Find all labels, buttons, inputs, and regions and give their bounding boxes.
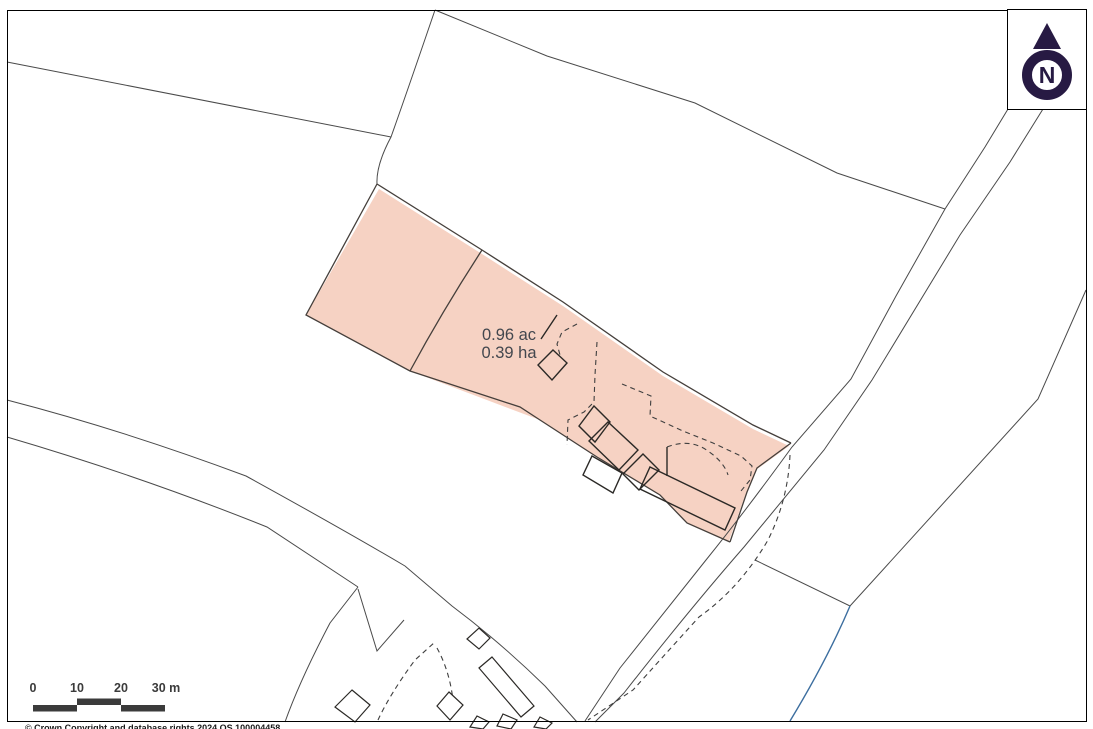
scale-bar-segment: [33, 705, 77, 712]
field-boundary-line: [7, 62, 391, 137]
building: [437, 692, 463, 720]
field-boundary-line: [377, 10, 435, 184]
scale-tick-label: 10: [70, 681, 84, 695]
stream-line: [790, 606, 850, 721]
building: [479, 657, 534, 717]
scale-tick-label: 20: [114, 681, 128, 695]
copyright-text: © Crown Copyright and database rights 20…: [25, 723, 280, 729]
scale-tick-label: 30 m: [152, 681, 181, 695]
area-label-acres: 0.96 ac: [482, 326, 536, 344]
building: [534, 717, 552, 729]
field-boundary-line: [755, 290, 1086, 606]
junction-triangle: [358, 589, 404, 651]
building: [470, 716, 489, 729]
scale-tick-label: 0: [30, 681, 37, 695]
site-plan-map: N 0 10 20 30 m 0.96 ac 0.39 ha © Crown C…: [0, 0, 1093, 729]
scale-bar: 0 10 20 30 m: [30, 681, 181, 712]
north-label: N: [1039, 62, 1056, 88]
road-edge-south: [7, 437, 358, 587]
area-label: 0.96 ac 0.39 ha: [481, 326, 537, 362]
dashed-path: [378, 642, 435, 720]
parcel-highlight: [306, 189, 789, 541]
outer-buildings: [335, 628, 552, 729]
scale-bar-segment: [121, 705, 165, 712]
scale-bar-segment: [77, 699, 121, 706]
building: [335, 690, 370, 722]
area-label-hectares: 0.39 ha: [481, 344, 537, 362]
field-boundary-line: [435, 10, 945, 209]
site-plan-page: N 0 10 20 30 m 0.96 ac 0.39 ha © Crown C…: [0, 0, 1093, 729]
building: [467, 628, 490, 649]
north-indicator: N: [1008, 10, 1087, 110]
